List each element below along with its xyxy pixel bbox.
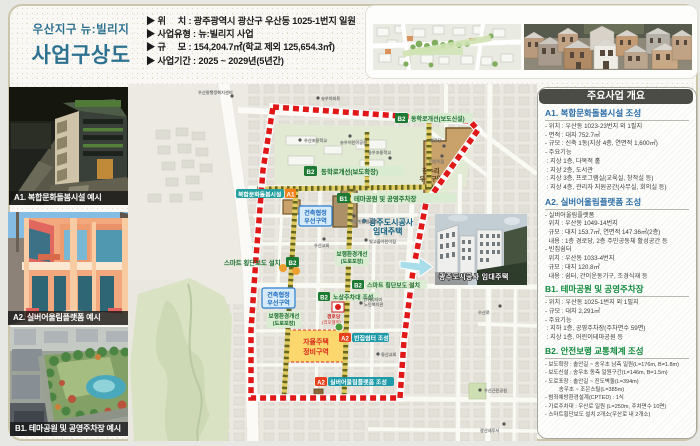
svg-text:건축협정: 건축협정 <box>267 291 290 299</box>
svg-text:B2: B2 <box>307 169 315 176</box>
svg-text:어린이집: 어린이집 <box>429 158 445 165</box>
svg-text:테마공원 및 공영주차장: 테마공원 및 공영주차장 <box>354 194 416 203</box>
svg-text:B2: B2 <box>289 260 297 267</box>
svg-text:자율주택: 자율주택 <box>303 337 329 346</box>
svg-text:B2: B2 <box>398 116 406 123</box>
svg-text:송우아파트: 송우아파트 <box>321 95 340 102</box>
svg-text:경로당: 경로당 <box>327 313 341 320</box>
svg-text:B2: B2 <box>320 296 328 302</box>
svg-text:빈집쉼터 조성: 빈집쉼터 조성 <box>354 335 389 343</box>
svg-text:빛고을어린이집: 빛고을어린이집 <box>369 238 396 245</box>
svg-text:A2: A2 <box>317 381 325 387</box>
svg-text:송우어린이공원: 송우어린이공원 <box>340 139 367 146</box>
svg-text:복합문화돌봄시설: 복합문화돌봄시설 <box>238 191 281 199</box>
svg-text:송우초등학교: 송우초등학교 <box>368 149 391 156</box>
svg-text:임대주택: 임대주택 <box>373 226 402 236</box>
svg-text:노인복지관: 노인복지관 <box>364 301 383 308</box>
svg-text:건축협정: 건축협정 <box>304 209 327 217</box>
svg-text:B1: B1 <box>340 196 348 203</box>
svg-text:동학로개선(보도확장): 동학로개선(보도확장) <box>321 167 378 176</box>
svg-text:우산초등학교: 우산초등학교 <box>304 137 327 144</box>
svg-text:광주도시공사 임대주택: 광주도시공사 임대주택 <box>439 272 509 281</box>
svg-text:A2: A2 <box>341 337 349 343</box>
svg-text:우산근린공원: 우산근린공원 <box>484 387 507 394</box>
svg-text:(도로포장): (도로포장) <box>341 257 364 265</box>
svg-text:동학로개선(보도신설): 동학로개선(보도신설) <box>411 115 465 123</box>
svg-text:우산빗물펌프장: 우산빗물펌프장 <box>350 218 377 225</box>
svg-text:우선구역: 우선구역 <box>304 217 327 225</box>
svg-text:B2: B2 <box>354 284 362 290</box>
svg-text:실버어울림플랫폼 조성: 실버어울림플랫폼 조성 <box>330 379 387 387</box>
svg-text:스마트 횡단보도 설치: 스마트 횡단보도 설치 <box>224 258 281 267</box>
svg-text:광산세무서: 광산세무서 <box>480 427 499 434</box>
svg-text:동산교회: 동산교회 <box>381 351 397 358</box>
svg-text:보행환경개선: 보행환경개선 <box>337 250 368 258</box>
svg-text:우선구역: 우선구역 <box>267 299 290 307</box>
svg-text:우산교회: 우산교회 <box>314 242 330 249</box>
svg-text:경로당: 경로당 <box>430 137 442 144</box>
svg-text:스마트 횡단보도 설치: 스마트 횡단보도 설치 <box>367 282 420 290</box>
svg-text:(도로포장): (도로포장) <box>273 319 296 327</box>
svg-text:우산동행정복지센터: 우산동행정복지센터 <box>198 89 233 96</box>
svg-text:정비구역: 정비구역 <box>303 347 329 356</box>
svg-text:보행환경개선: 보행환경개선 <box>269 312 300 320</box>
svg-text:우산로: 우산로 <box>478 309 490 316</box>
svg-text:A1: A1 <box>287 192 295 199</box>
